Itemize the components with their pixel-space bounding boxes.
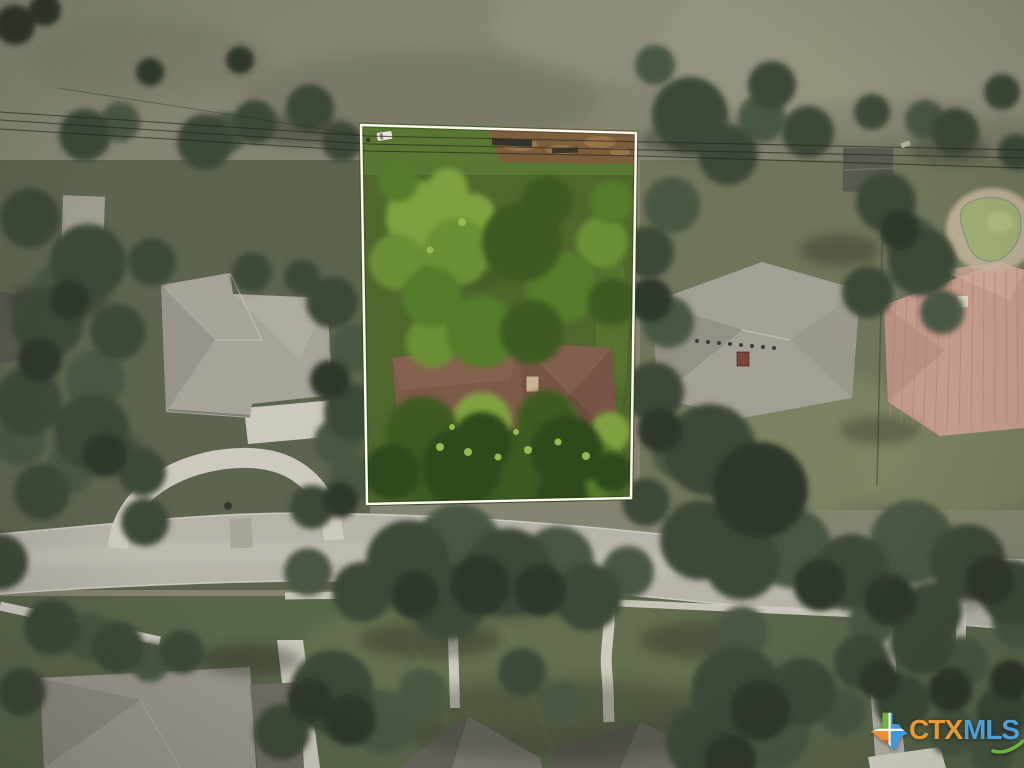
object-on-curb [224, 502, 232, 510]
brand-swoosh-icon [991, 739, 1024, 755]
road-patch [229, 517, 253, 548]
chimney [526, 376, 539, 392]
subject-lot [359, 123, 640, 532]
texas-state-icon [870, 712, 908, 750]
ctxmls-watermark: CTXMLS [870, 709, 1019, 753]
aerial-scene [0, 0, 1024, 768]
utility-pole [366, 138, 370, 142]
brand-text-ctx: CTX [909, 716, 962, 744]
aerial-photo: CTXMLS [0, 0, 1024, 768]
chimney [737, 352, 749, 366]
